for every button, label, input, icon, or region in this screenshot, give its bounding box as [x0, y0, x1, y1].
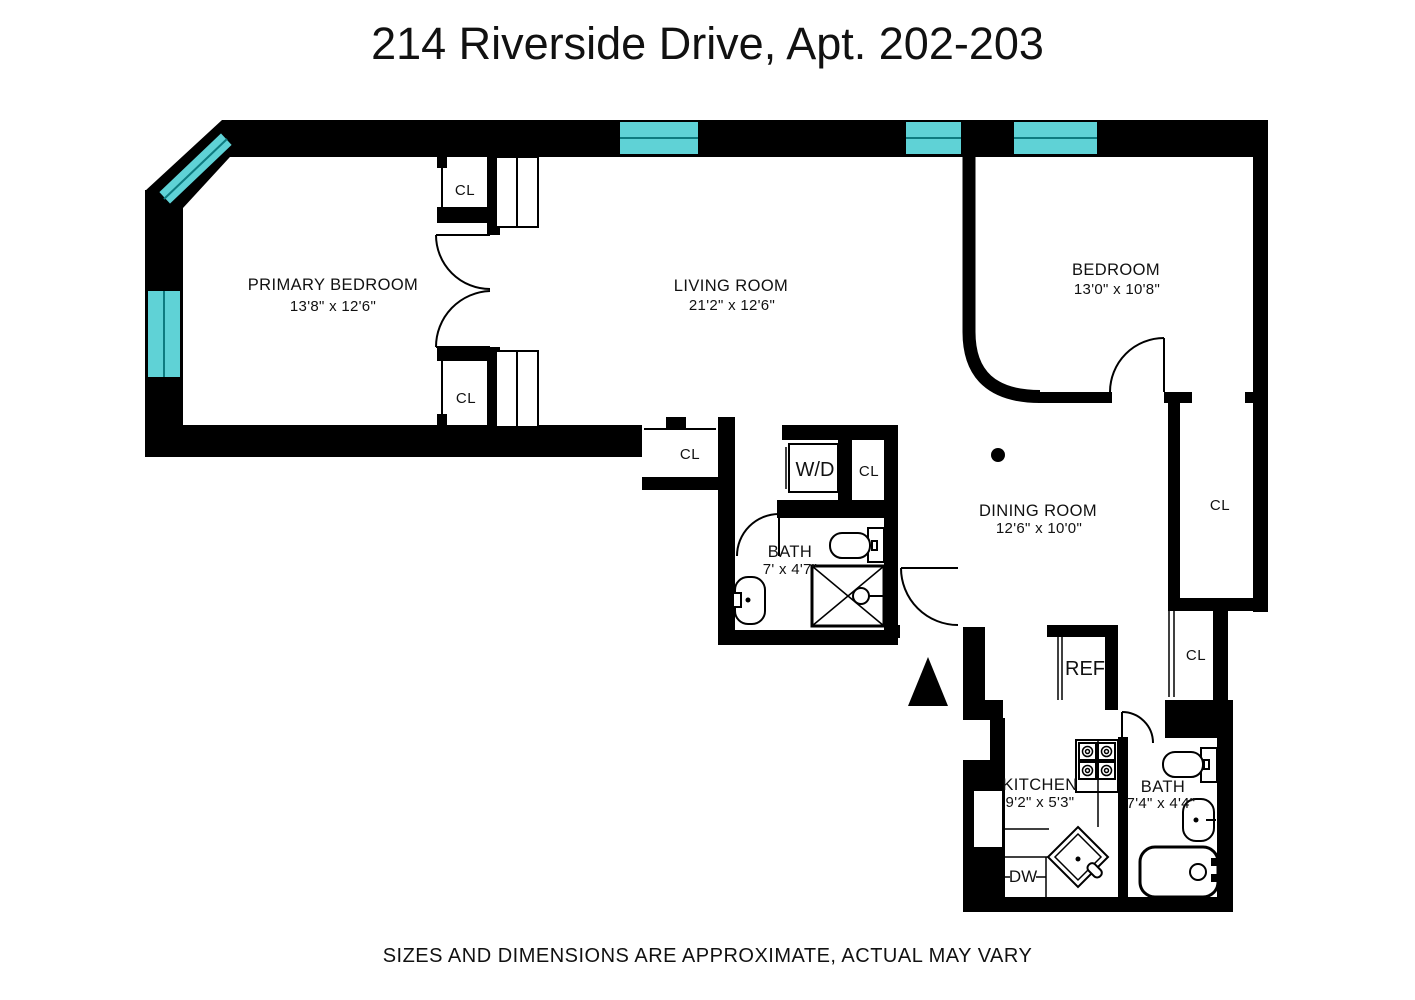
shower	[812, 566, 884, 626]
window-primary-left	[147, 290, 181, 378]
kitchen-dims: 9'2" x 5'3"	[1006, 794, 1075, 811]
bathtub	[1140, 847, 1228, 897]
walls	[145, 120, 1268, 912]
closet-panel	[496, 351, 517, 427]
dining-room-name: DINING ROOM	[979, 502, 1097, 520]
window-bedroom-right	[1013, 121, 1098, 155]
windows	[147, 121, 1098, 378]
disclaimer-text: SIZES AND DIMENSIONS ARE APPROXIMATE, AC…	[0, 945, 1415, 968]
floorplan-drawing: PRIMARY BEDROOM 13'8" x 12'6" LIVING ROO…	[0, 0, 1415, 1000]
entry-door	[901, 568, 958, 625]
stove	[1076, 740, 1118, 792]
entry-arrow-icon	[908, 657, 948, 706]
washer-dryer-label: W/D	[796, 459, 835, 481]
bath-main-name: BATH	[768, 543, 812, 561]
kitchen-name: KITCHEN	[1002, 776, 1077, 794]
bedroom-door	[1110, 338, 1164, 392]
closet-label-top: CL	[455, 182, 475, 199]
bath-second-name: BATH	[1141, 778, 1185, 796]
closet-label-small: CL	[1186, 647, 1206, 664]
closet-label-bottom: CL	[456, 390, 476, 407]
closet-label-hall: CL	[680, 446, 700, 463]
french-door-bottom	[436, 291, 490, 347]
living-room-name: LIVING ROOM	[674, 277, 788, 295]
bath-second-dims: 7'4" x 4'4"	[1127, 795, 1196, 812]
bedroom-dims: 13'0" x 10'8"	[1074, 281, 1160, 298]
bedroom-name: BEDROOM	[1072, 261, 1160, 279]
closet-panel	[496, 157, 517, 227]
kitchen-sink	[1048, 827, 1108, 887]
window-living-room	[619, 121, 699, 155]
closet-label-big: CL	[1210, 497, 1230, 514]
dishwasher-label: DW	[1009, 867, 1037, 886]
living-room-dims: 21'2" x 12'6"	[689, 297, 775, 314]
closet-panel	[517, 351, 538, 427]
closet-panel	[517, 157, 538, 227]
primary-bedroom-name: PRIMARY BEDROOM	[248, 276, 418, 294]
closet-label-wd: CL	[859, 463, 879, 480]
toilet	[830, 528, 884, 562]
dining-room-dims: 12'6" x 10'0"	[996, 520, 1082, 537]
sink	[733, 577, 765, 624]
toilet	[1163, 748, 1217, 782]
dining-column-dot	[991, 448, 1005, 462]
bath-main-dims: 7' x 4'7"	[763, 561, 818, 578]
counter-unit	[973, 790, 1003, 848]
window-bedroom-left	[905, 121, 962, 155]
french-door-top	[436, 235, 490, 289]
floorplan-page: 214 Riverside Drive, Apt. 202-203	[0, 0, 1415, 1000]
bath-second-fixtures	[1140, 748, 1228, 897]
refrigerator-label: REF	[1065, 658, 1105, 680]
primary-bedroom-dims: 13'8" x 12'6"	[290, 298, 376, 315]
